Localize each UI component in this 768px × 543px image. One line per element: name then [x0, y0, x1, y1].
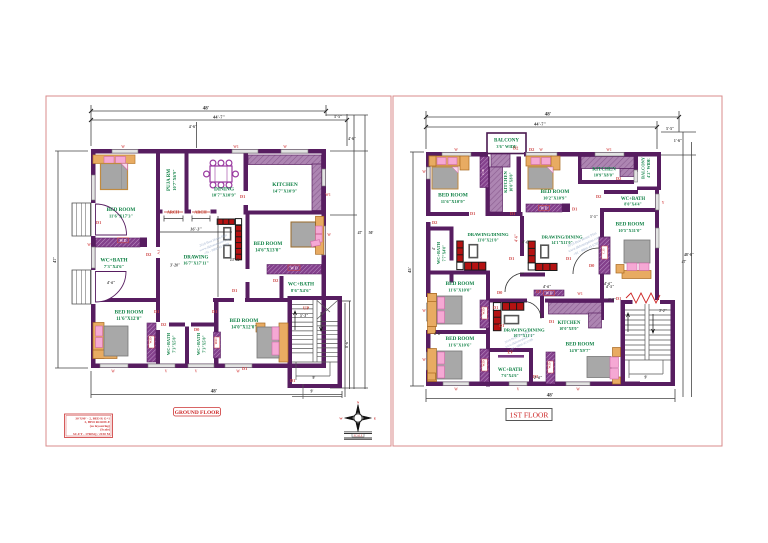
svg-text:3'-20": 3'-20": [169, 264, 180, 268]
svg-text:W1: W1: [577, 292, 583, 296]
svg-text:W: W: [422, 170, 426, 174]
svg-text:48': 48': [545, 113, 552, 118]
svg-text:D2: D2: [616, 176, 621, 181]
svg-text:V: V: [195, 370, 198, 374]
svg-text:1'-6": 1'-6": [608, 298, 616, 302]
svg-text:BED ROOM: BED ROOM: [616, 222, 645, 228]
svg-text:10'7"X6'9": 10'7"X6'9": [172, 169, 177, 190]
svg-text:BED ROOM: BED ROOM: [230, 318, 259, 324]
svg-text:W: W: [283, 145, 287, 149]
svg-text:D1: D1: [154, 309, 159, 314]
svg-text:7'3"X4'6": 7'3"X4'6": [104, 264, 125, 269]
svg-text:W.D: W.D: [214, 338, 218, 345]
svg-text:4'-6": 4'-6": [348, 137, 356, 141]
svg-text:47': 47': [52, 257, 57, 263]
svg-text:W D: W D: [290, 266, 298, 270]
svg-text:11'6"X10'0": 11'6"X10'0": [448, 288, 471, 293]
svg-text:KITCHEN: KITCHEN: [503, 170, 508, 192]
svg-text:5'-5": 5'-5": [590, 215, 598, 219]
svg-text:48': 48': [203, 107, 210, 112]
svg-text:10'0"X8'0": 10'0"X8'0": [509, 172, 514, 192]
svg-text:BED ROOM: BED ROOM: [107, 207, 136, 213]
svg-text:BED ROOM: BED ROOM: [566, 342, 595, 348]
svg-text:W.D: W.D: [482, 308, 486, 315]
svg-text:48': 48': [211, 390, 218, 395]
svg-text:13'0"X21'0": 13'0"X21'0": [477, 238, 499, 243]
svg-text:4'-6": 4'-6": [189, 125, 197, 129]
svg-text:BED ROOM: BED ROOM: [438, 193, 468, 199]
svg-text:11'6"X10'9": 11'6"X10'9": [441, 199, 466, 204]
svg-text:4'-6": 4'-6": [106, 281, 115, 285]
svg-text:KITCHEN: KITCHEN: [272, 182, 298, 188]
svg-text:11'6"X17'3": 11'6"X17'3": [109, 214, 133, 219]
svg-text:D1: D1: [549, 319, 554, 324]
svg-text:11'6"X12'0": 11'6"X12'0": [116, 317, 142, 322]
svg-text:4': 4': [432, 247, 436, 251]
svg-text:4'-6": 4'-6": [521, 241, 530, 245]
svg-text:WC+BATH: WC+BATH: [196, 332, 201, 355]
svg-text:W: W: [236, 370, 240, 374]
svg-text:47': 47': [682, 260, 687, 264]
svg-text:14'0"X9'7": 14'0"X9'7": [569, 348, 590, 353]
svg-text:D1: D1: [536, 289, 541, 294]
svg-text:BED ROOM: BED ROOM: [115, 310, 144, 316]
svg-text:SC.FT - 1760SQ / 2150 M: SC.FT - 1760SQ / 2150 M: [73, 432, 111, 436]
svg-text:4'-6": 4'-6": [515, 234, 519, 242]
svg-text:D1: D1: [470, 211, 475, 216]
svg-text:W1: W1: [325, 193, 331, 197]
svg-text:10'0"X8'0": 10'0"X8'0": [559, 326, 579, 331]
svg-text:DRAWING/DINING: DRAWING/DINING: [467, 232, 509, 237]
svg-text:W: W: [121, 145, 125, 149]
svg-text:W1: W1: [606, 148, 612, 152]
svg-text:13'-11: 13'-11: [230, 258, 240, 262]
svg-text:W.D: W.D: [548, 362, 552, 369]
svg-text:D1: D1: [96, 220, 101, 225]
svg-text:D1: D1: [566, 256, 571, 261]
svg-text:D0: D0: [589, 263, 595, 268]
svg-text:(Scale): (Scale): [100, 428, 110, 432]
svg-text:BED ROOM: BED ROOM: [446, 336, 475, 342]
svg-text:V: V: [165, 370, 168, 374]
svg-text:GROUND FLOOR: GROUND FLOOR: [175, 410, 220, 416]
svg-text:D2: D2: [273, 278, 278, 283]
svg-text:BED ROOM: BED ROOM: [446, 281, 475, 287]
svg-text:7'3"X5'0": 7'3"X5'0": [202, 335, 207, 353]
svg-text:1'-6": 1'-6": [674, 139, 682, 143]
svg-text:D1: D1: [616, 296, 621, 301]
svg-text:8'0"X4'4": 8'0"X4'4": [624, 202, 642, 207]
svg-text:V: V: [517, 388, 520, 392]
svg-text:8'6"X4'6": 8'6"X4'6": [291, 288, 312, 293]
svg-text:44'-7": 44'-7": [534, 122, 546, 127]
svg-text:47': 47': [358, 231, 363, 235]
svg-text:44'-7": 44'-7": [213, 115, 225, 120]
svg-text:16'-3": 16'-3": [190, 227, 202, 232]
svg-text:D2: D2: [146, 252, 151, 257]
svg-text:W: W: [576, 388, 580, 392]
svg-text:11'6"X10'6": 11'6"X10'6": [448, 343, 471, 348]
svg-text:1ST FLOOR: 1ST FLOOR: [510, 411, 549, 420]
svg-text:W: W: [422, 309, 426, 313]
svg-text:7'6"X4'6": 7'6"X4'6": [501, 373, 519, 378]
svg-text:D0: D0: [194, 327, 200, 332]
svg-text:D1: D1: [212, 309, 217, 314]
svg-text:10'7"X10'9": 10'7"X10'9": [212, 193, 237, 198]
svg-text:D2: D2: [596, 194, 601, 199]
svg-text:W: W: [539, 148, 543, 152]
svg-text:48': 48': [547, 394, 554, 399]
svg-text:WC+BATH: WC+BATH: [436, 241, 441, 264]
svg-text:C.B: C.B: [602, 248, 606, 254]
svg-text:A.1: A.1: [157, 249, 161, 254]
svg-text:D2: D2: [513, 146, 518, 151]
svg-text:W1: W1: [233, 145, 239, 149]
svg-text:C.B: C.B: [481, 168, 485, 174]
svg-text:W: W: [87, 243, 91, 247]
svg-text:10'2"X10'9": 10'2"X10'9": [543, 196, 567, 201]
svg-text:48'-6": 48'-6": [684, 253, 694, 257]
svg-text:BALCONY: BALCONY: [494, 139, 519, 144]
svg-text:W: W: [454, 388, 458, 392]
svg-text:D1: D1: [290, 378, 295, 383]
svg-text:14'0"X12'0": 14'0"X12'0": [231, 326, 257, 331]
svg-text:9': 9': [311, 390, 314, 394]
svg-text:W: W: [454, 148, 458, 152]
svg-text:W D: W D: [540, 206, 547, 210]
svg-text:D1: D1: [493, 305, 498, 310]
svg-text:7'3"X5'0": 7'3"X5'0": [172, 335, 177, 353]
svg-text:10'9"X8'0": 10'9"X8'0": [594, 173, 614, 178]
svg-text:W.D: W.D: [149, 337, 153, 344]
svg-text:DRAWING/DINING: DRAWING/DINING: [541, 235, 583, 240]
svg-text:W: W: [327, 233, 331, 237]
svg-text:W: W: [422, 358, 426, 362]
svg-text:D1: D1: [510, 211, 515, 216]
svg-text:3'-5": 3'-5": [334, 115, 342, 119]
svg-text:W: W: [111, 370, 115, 374]
svg-text:3'-5": 3'-5": [666, 127, 674, 131]
svg-text:BED ROOM: BED ROOM: [254, 241, 283, 247]
svg-text:WC+BATH: WC+BATH: [166, 332, 171, 355]
svg-text:Y: Y: [662, 201, 665, 205]
svg-text:16'7"X17'11": 16'7"X17'11": [183, 261, 209, 266]
svg-text:WC+BATH: WC+BATH: [288, 282, 314, 288]
svg-text:8'-6": 8'-6": [345, 340, 349, 348]
svg-text:3'-2": 3'-2": [658, 309, 667, 313]
svg-text:UP: UP: [303, 306, 309, 311]
svg-text:4'2" WIDE: 4'2" WIDE: [646, 158, 651, 178]
svg-text:D1: D1: [232, 288, 237, 293]
svg-text:SCALE: SCALE: [354, 435, 363, 438]
svg-text:W.D: W.D: [482, 360, 486, 367]
svg-text:D1: D1: [499, 323, 504, 328]
svg-text:9': 9': [313, 376, 316, 380]
svg-text:14'7"X10'9": 14'7"X10'9": [273, 189, 298, 194]
svg-text:WC+BATH: WC+BATH: [100, 258, 128, 264]
svg-text:4'-6": 4'-6": [433, 332, 442, 336]
svg-text:9': 9': [645, 376, 648, 380]
svg-text:2'-6": 2'-6": [533, 376, 542, 380]
svg-text:W D: W D: [119, 239, 126, 243]
svg-text:14'6"X13'0": 14'6"X13'0": [255, 249, 281, 254]
svg-text:50': 50': [369, 231, 374, 235]
svg-text:4'-6": 4'-6": [542, 285, 551, 289]
svg-text:7'7"X4'0": 7'7"X4'0": [443, 245, 447, 262]
svg-text:BALCONY: BALCONY: [641, 156, 646, 179]
svg-text:BED ROOM: BED ROOM: [541, 189, 570, 195]
svg-text:D1: D1: [572, 207, 577, 212]
svg-text:D2: D2: [161, 322, 166, 327]
svg-text:D1: D1: [240, 194, 245, 199]
svg-text:D0: D0: [497, 290, 503, 295]
svg-text:10'5"X11'0": 10'5"X11'0": [618, 228, 641, 233]
svg-text:D2: D2: [432, 220, 437, 225]
svg-text:D1: D1: [242, 366, 247, 371]
svg-text:45': 45': [407, 267, 412, 273]
svg-text:4'-6": 4'-6": [603, 282, 612, 286]
svg-text:5'-3": 5'-3": [300, 314, 308, 318]
svg-text:D1: D1: [509, 256, 514, 261]
svg-text:D2: D2: [529, 147, 534, 152]
svg-text:W D: W D: [545, 292, 552, 296]
